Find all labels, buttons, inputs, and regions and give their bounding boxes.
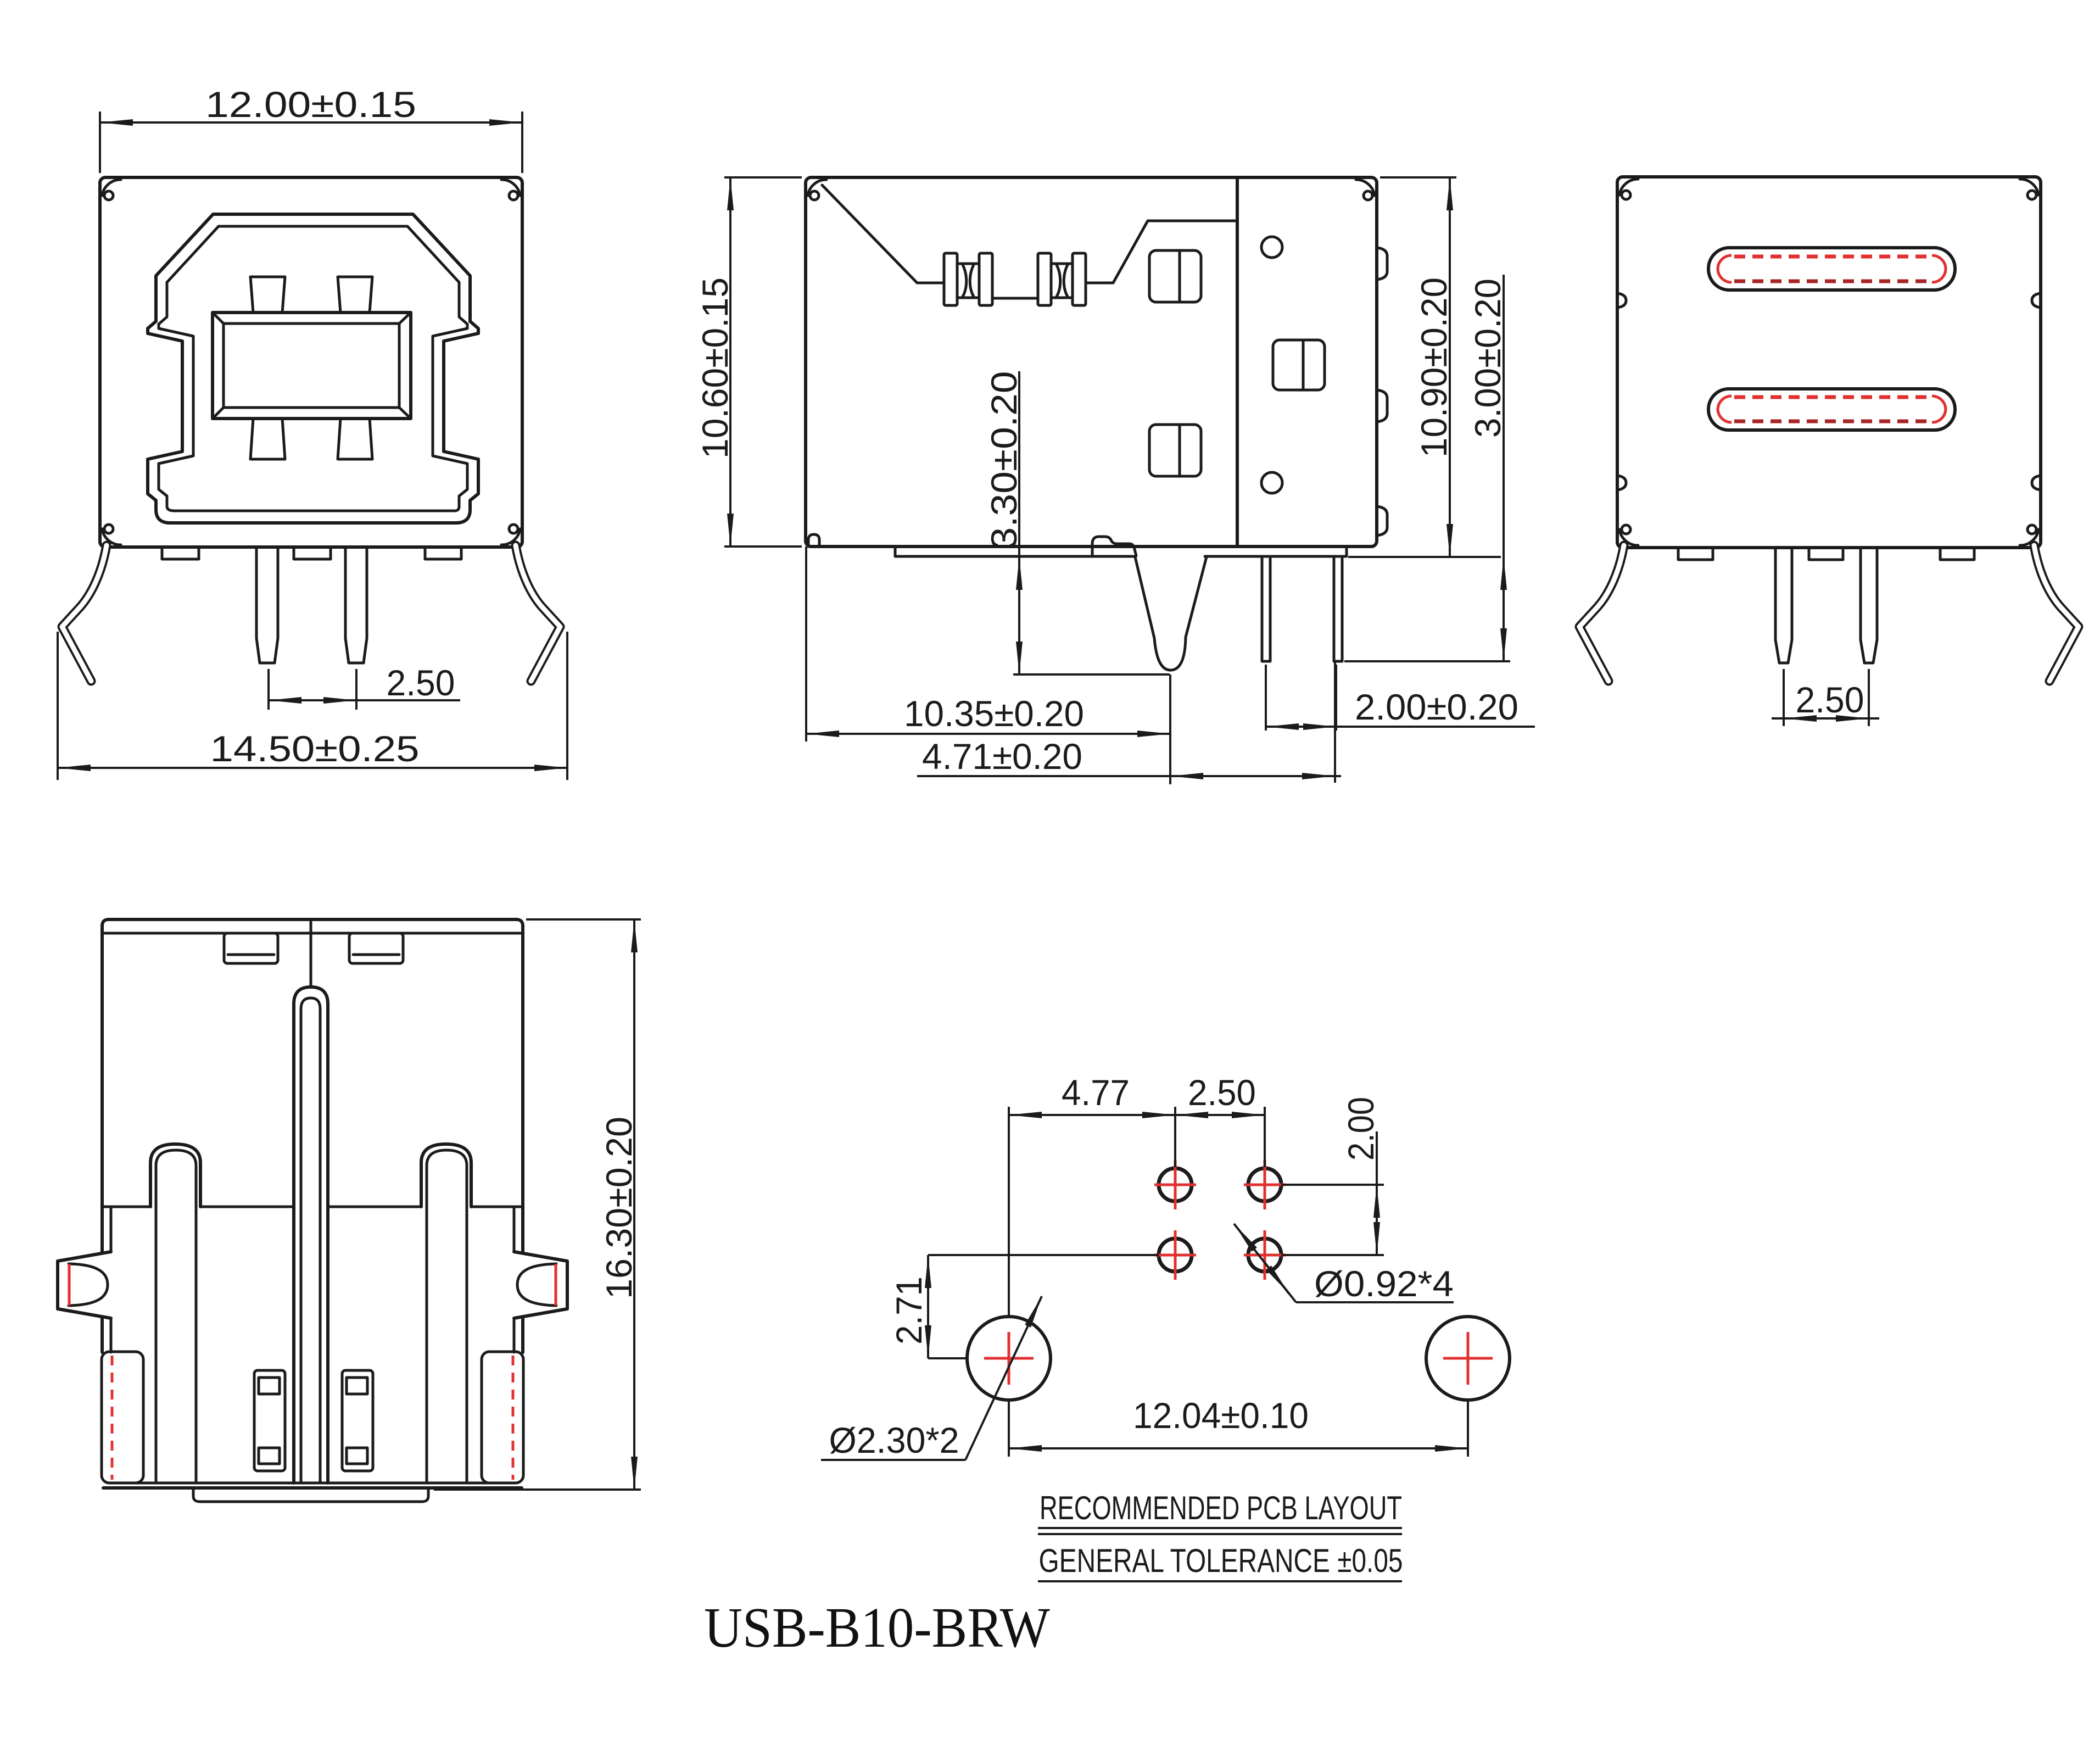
svg-text:USB-B10-BRW: USB-B10-BRW — [704, 1596, 1050, 1659]
svg-text:4.77: 4.77 — [1062, 1072, 1130, 1113]
svg-text:16.30±0.20: 16.30±0.20 — [599, 1117, 639, 1299]
svg-text:10.90±0.20: 10.90±0.20 — [1414, 277, 1454, 458]
svg-text:RECOMMENDED PCB LAYOUT: RECOMMENDED PCB LAYOUT — [1040, 1490, 1402, 1526]
svg-text:GENERAL TOLERANCE ±0.05: GENERAL TOLERANCE ±0.05 — [1039, 1542, 1403, 1579]
svg-text:2.00: 2.00 — [1341, 1097, 1381, 1161]
svg-text:10.35±0.20: 10.35±0.20 — [904, 693, 1084, 734]
svg-text:3.30±0.20: 3.30±0.20 — [984, 371, 1024, 550]
svg-text:12.00±0.15: 12.00±0.15 — [205, 84, 416, 125]
svg-text:2.50: 2.50 — [1188, 1072, 1256, 1113]
svg-text:2.00±0.20: 2.00±0.20 — [1355, 687, 1518, 727]
svg-text:12.04±0.10: 12.04±0.10 — [1133, 1395, 1309, 1436]
svg-text:2.50: 2.50 — [1796, 679, 1864, 720]
svg-text:Ø0.92*4: Ø0.92*4 — [1314, 1263, 1454, 1304]
svg-text:10.60±0.15: 10.60±0.15 — [695, 277, 735, 459]
svg-text:2.50: 2.50 — [387, 662, 455, 703]
svg-text:3.00±0.20: 3.00±0.20 — [1467, 278, 1508, 438]
svg-text:4.71±0.20: 4.71±0.20 — [922, 736, 1082, 777]
svg-text:14.50±0.25: 14.50±0.25 — [210, 728, 420, 769]
svg-text:2.71: 2.71 — [889, 1276, 929, 1345]
svg-text:Ø2.30*2: Ø2.30*2 — [829, 1420, 959, 1460]
